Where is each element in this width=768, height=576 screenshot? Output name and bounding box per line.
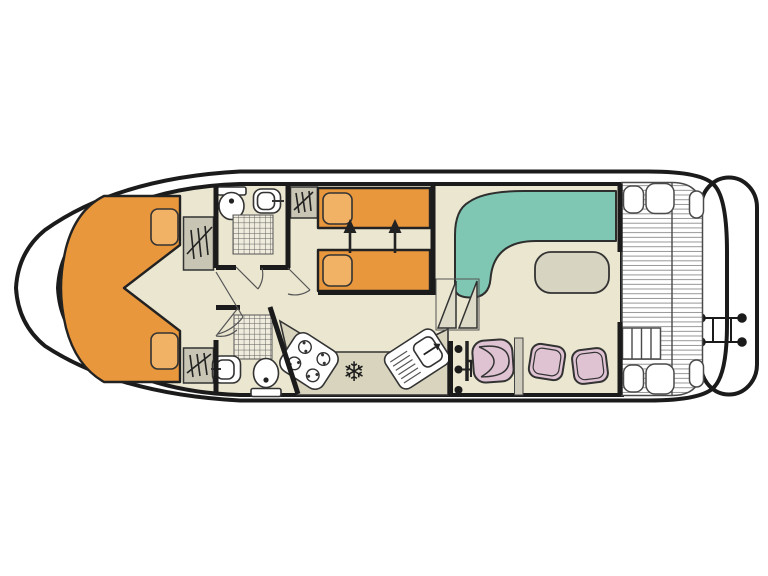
- bench-seat: [624, 186, 644, 213]
- aft-deck: [622, 183, 704, 396]
- toilet: [251, 359, 281, 397]
- bench-seat: [646, 364, 674, 394]
- pillow: [151, 209, 178, 245]
- wardrobe: [184, 217, 214, 270]
- pillow: [323, 193, 352, 224]
- pillow: [151, 333, 178, 369]
- pillow: [323, 255, 352, 286]
- wardrobe: [184, 348, 214, 383]
- washbasin: [254, 189, 285, 213]
- fridge-icon: ❄: [343, 357, 366, 388]
- boat-floorplan: ❄: [0, 0, 768, 576]
- stool: [571, 347, 609, 385]
- bench-seat: [690, 191, 704, 218]
- shower: [233, 215, 273, 254]
- wardrobe: [291, 187, 318, 218]
- bench-seat: [690, 360, 704, 387]
- deck-steps: [623, 328, 661, 359]
- helm-seat: [472, 339, 515, 384]
- stool: [528, 343, 567, 382]
- partition-post: [515, 338, 524, 395]
- bench-seat: [624, 365, 644, 392]
- bench-seat: [646, 184, 674, 214]
- saloon-table: [535, 252, 609, 293]
